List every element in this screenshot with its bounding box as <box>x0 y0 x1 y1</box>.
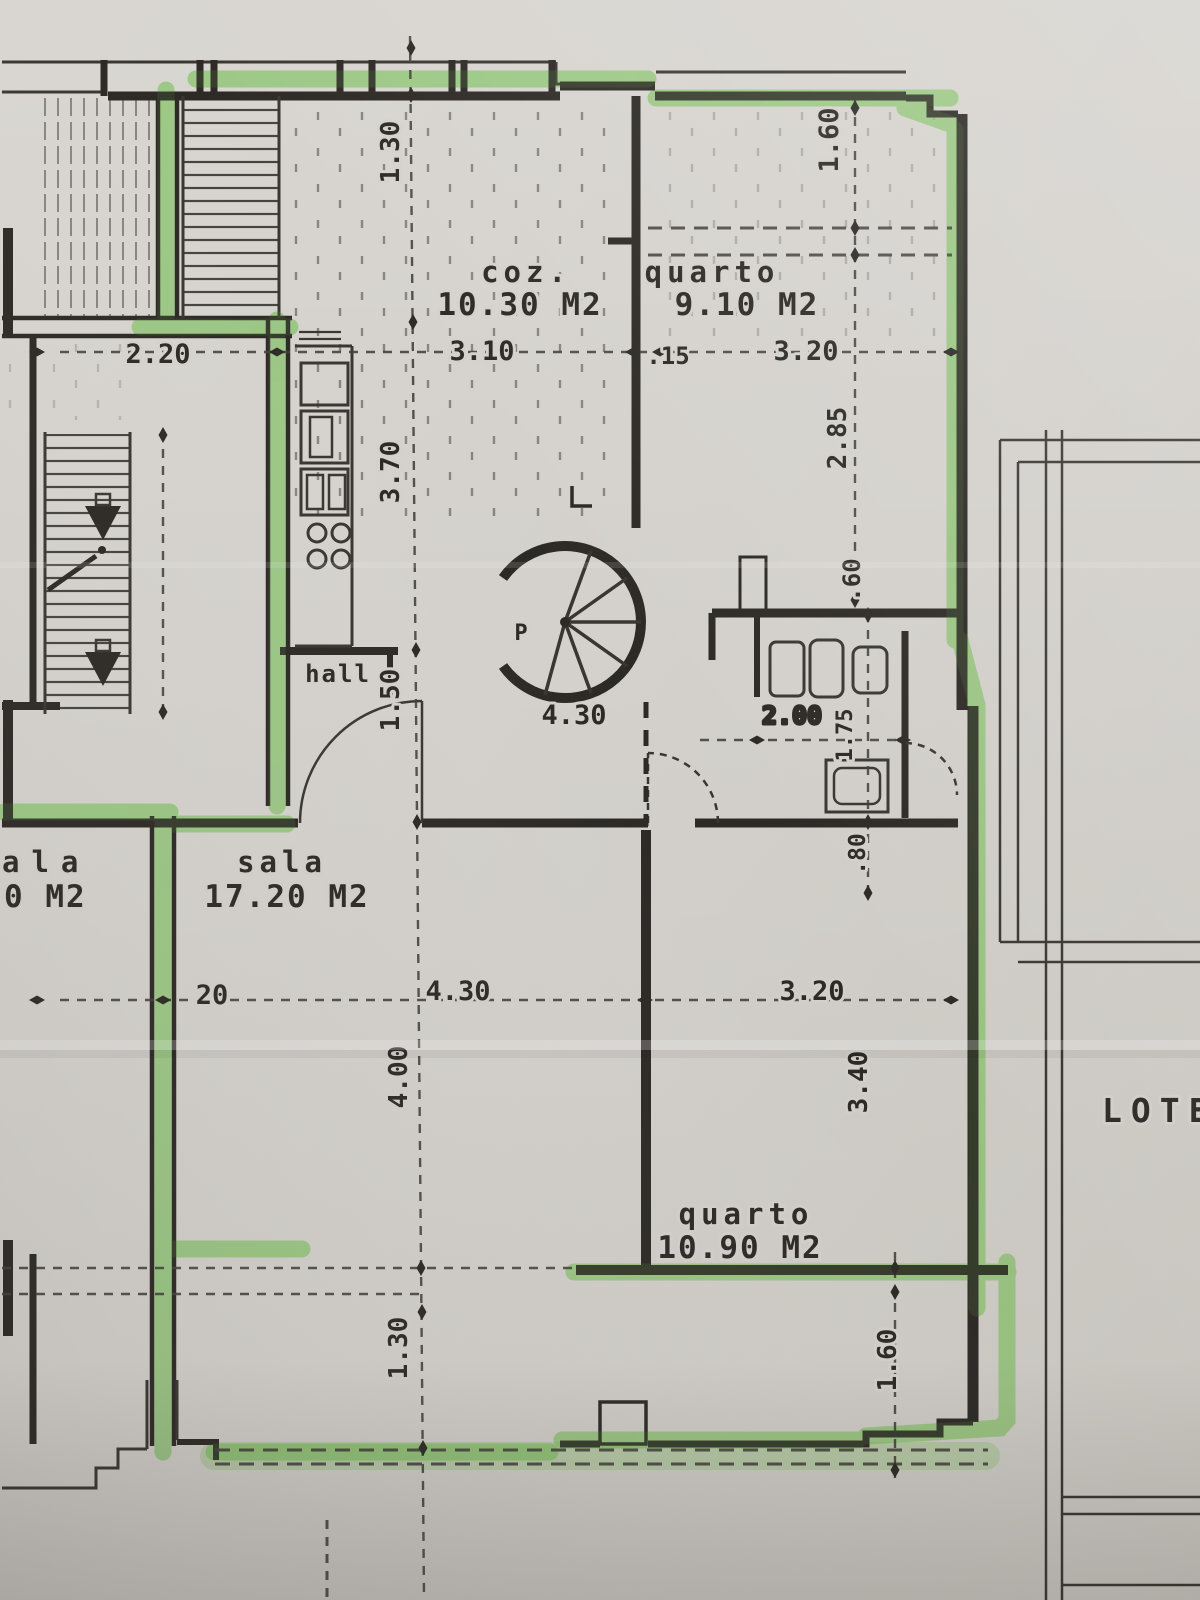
floor-plan-canvas: coz. 10.30 M2 quarto 9.10 M2 sala 17.20 … <box>0 0 1200 1600</box>
floor-plan-photo: coz. 10.30 M2 quarto 9.10 M2 sala 17.20 … <box>0 0 1200 1600</box>
photo-shading <box>0 0 1200 1600</box>
